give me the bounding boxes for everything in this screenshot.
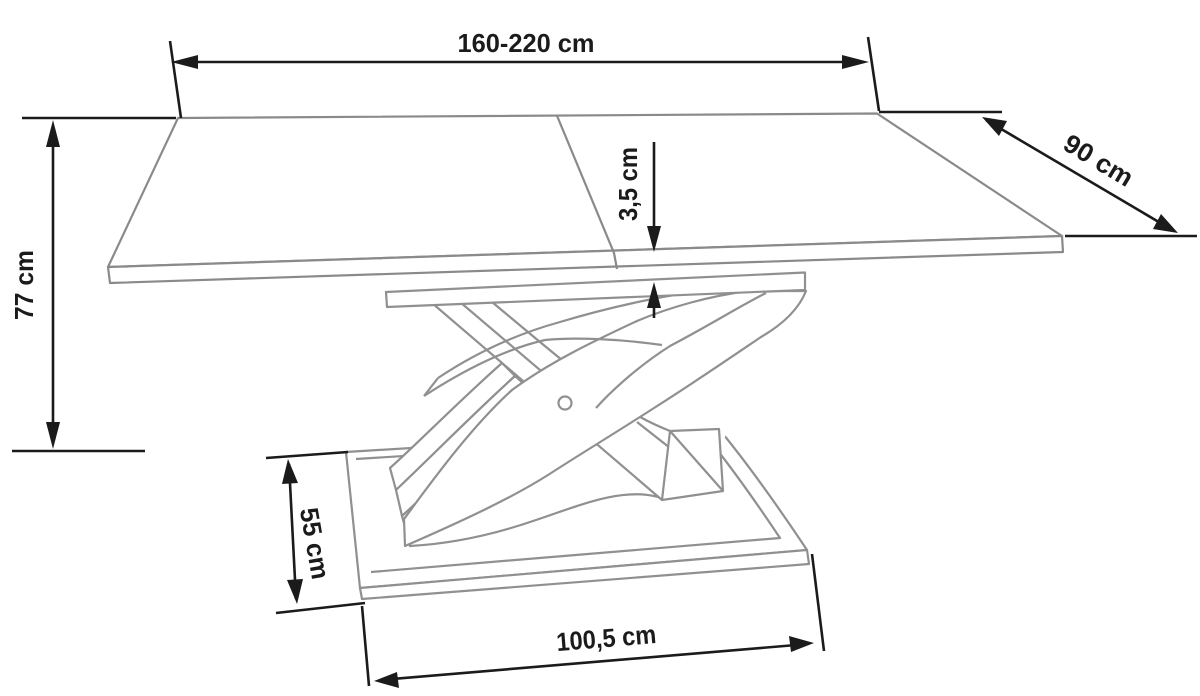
svg-text:160-220 cm: 160-220 cm [458,28,595,58]
svg-text:77 cm: 77 cm [9,250,39,320]
svg-text:3,5 cm: 3,5 cm [613,147,643,221]
